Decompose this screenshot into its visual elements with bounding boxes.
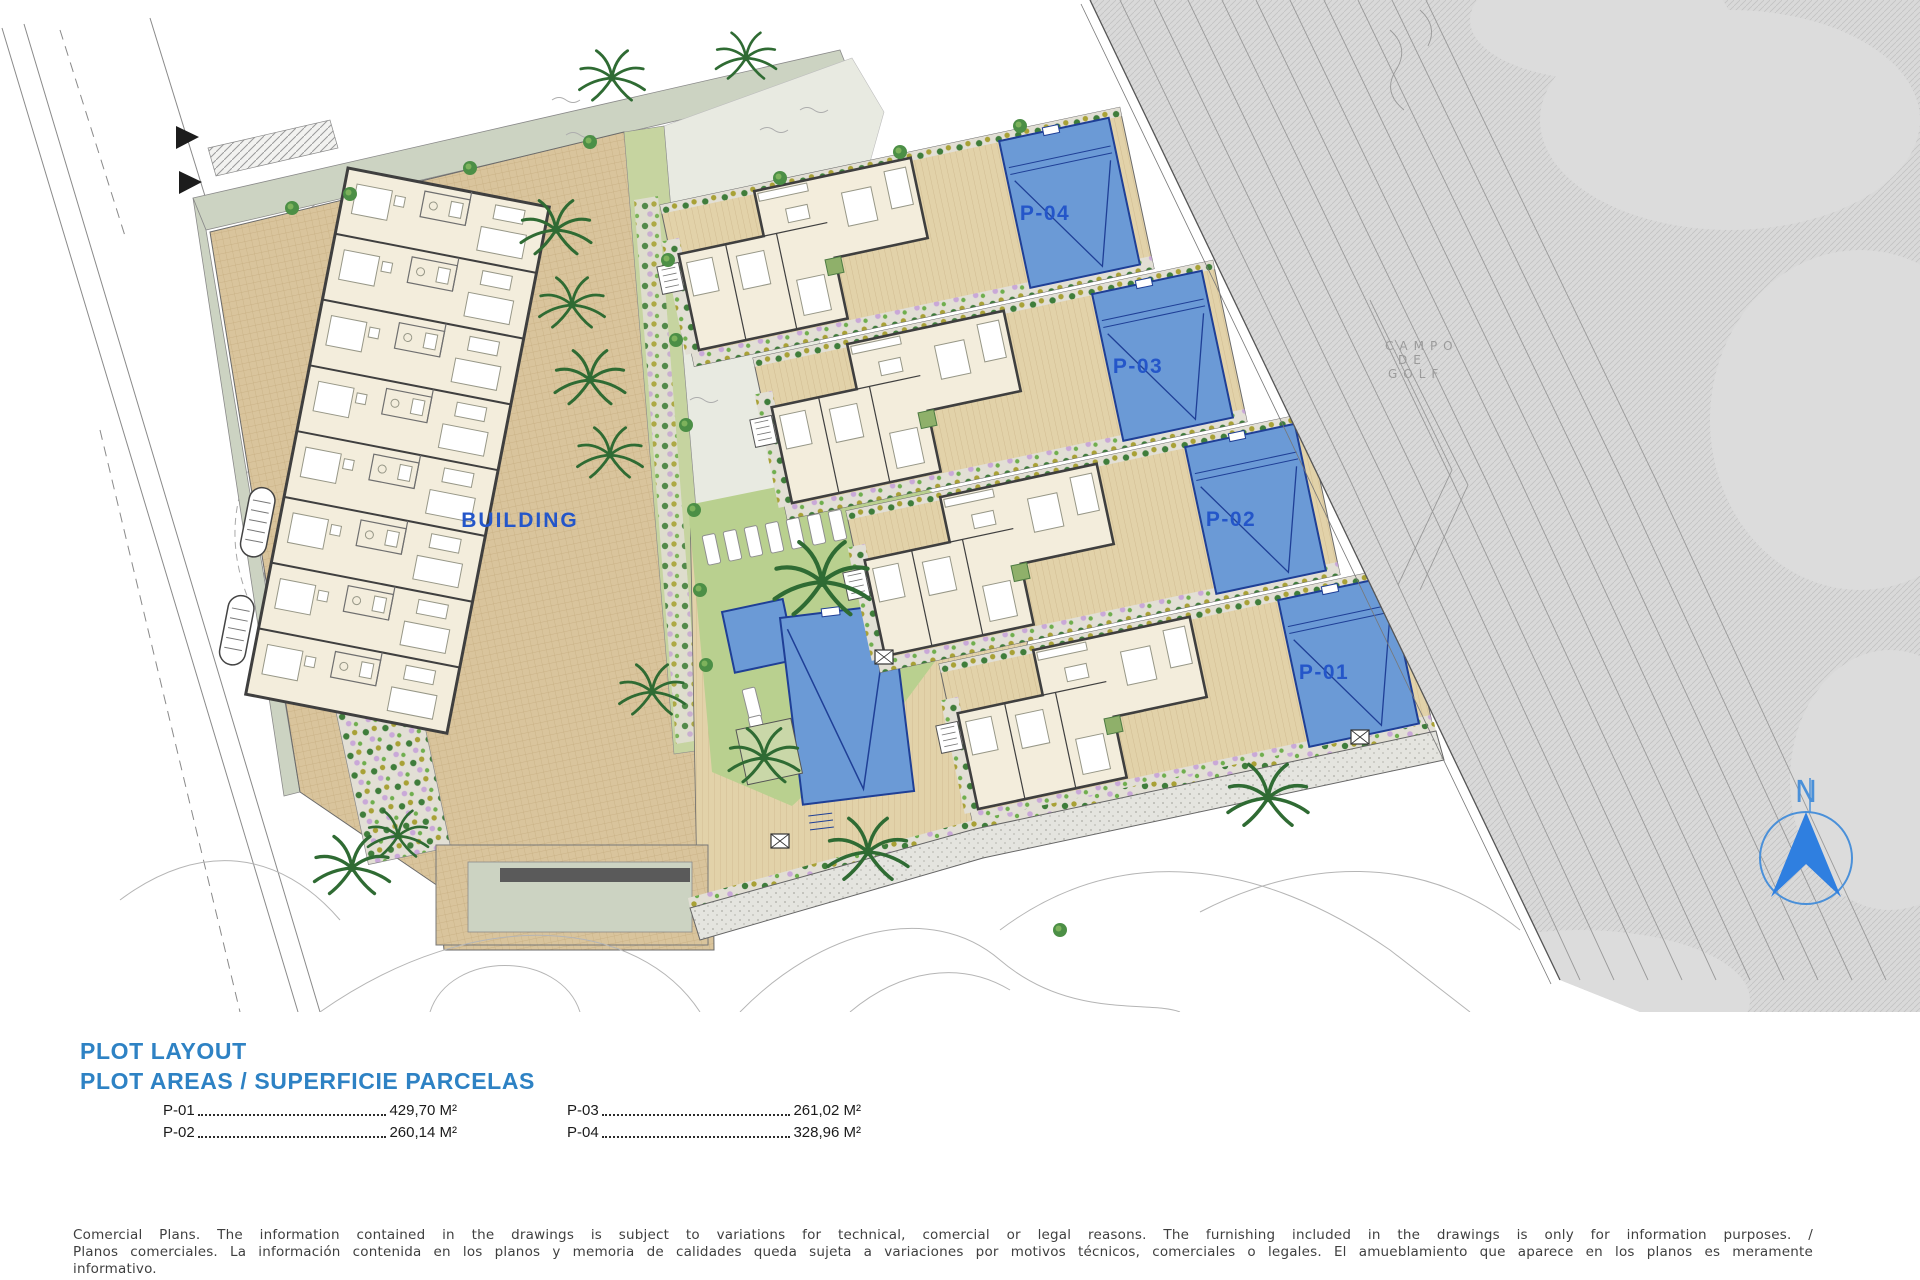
plot-label-p02: P-02	[1206, 508, 1256, 531]
plot-area-label: P-02	[163, 1124, 195, 1141]
plot-label-p04: P-04	[1020, 202, 1070, 225]
plot-area-row: P-02 260,14 M²	[163, 1119, 457, 1141]
plot-area-value: 328,96 M²	[793, 1124, 861, 1141]
plot-area-label: P-01	[163, 1102, 195, 1119]
crosswalk	[208, 120, 338, 176]
plot-area-value: 261,02 M²	[793, 1102, 861, 1119]
plot-area-row: P-01 429,70 M²	[163, 1097, 457, 1119]
solarium-deck	[436, 845, 708, 945]
road-arrow-icon	[176, 126, 202, 194]
golf-course-label-line1: CAMPO	[1385, 339, 1459, 353]
legend-subtitle: PLOT AREAS / SUPERFICIE PARCELAS	[80, 1066, 535, 1096]
plot-areas-column-1: P-01 429,70 M² P-02 260,14 M²	[163, 1097, 457, 1141]
disclaimer: Comercial Plans. The information contain…	[73, 1227, 1813, 1278]
golf-course-label-line3: GOLF	[1388, 367, 1444, 381]
north-label: N	[1795, 775, 1817, 810]
plot-area-value: 429,70 M²	[389, 1102, 457, 1119]
disclaimer-line-2: Planos comerciales. La información conte…	[73, 1244, 1813, 1261]
plot-area-value: 260,14 M²	[389, 1124, 457, 1141]
leader-dots	[198, 1135, 387, 1138]
plot-area-row: P-04 328,96 M²	[567, 1119, 861, 1141]
legend-title: PLOT LAYOUT	[80, 1036, 535, 1066]
plot-areas-column-2: P-03 261,02 M² P-04 328,96 M²	[567, 1097, 861, 1141]
leader-dots	[602, 1135, 791, 1138]
disclaimer-line-3: informativo.	[73, 1261, 1813, 1278]
leader-dots	[198, 1113, 387, 1116]
legend: PLOT LAYOUT PLOT AREAS / SUPERFICIE PARC…	[80, 1036, 535, 1096]
plot-area-row: P-03 261,02 M²	[567, 1097, 861, 1119]
plot-label-p01: P-01	[1299, 661, 1349, 684]
disclaimer-line-1: Comercial Plans. The information contain…	[73, 1227, 1813, 1244]
plot-layout-page: CAMPO DE GOLF BUILDING	[0, 0, 1920, 1280]
plot-area-label: P-03	[567, 1102, 599, 1119]
leader-dots	[602, 1113, 791, 1116]
plot-area-label: P-04	[567, 1124, 599, 1141]
golf-course-label-line2: DE	[1398, 353, 1427, 367]
site-plan: CAMPO DE GOLF BUILDING	[0, 0, 1920, 1012]
plot-label-p03: P-03	[1113, 355, 1163, 378]
building-label: BUILDING	[461, 509, 579, 532]
